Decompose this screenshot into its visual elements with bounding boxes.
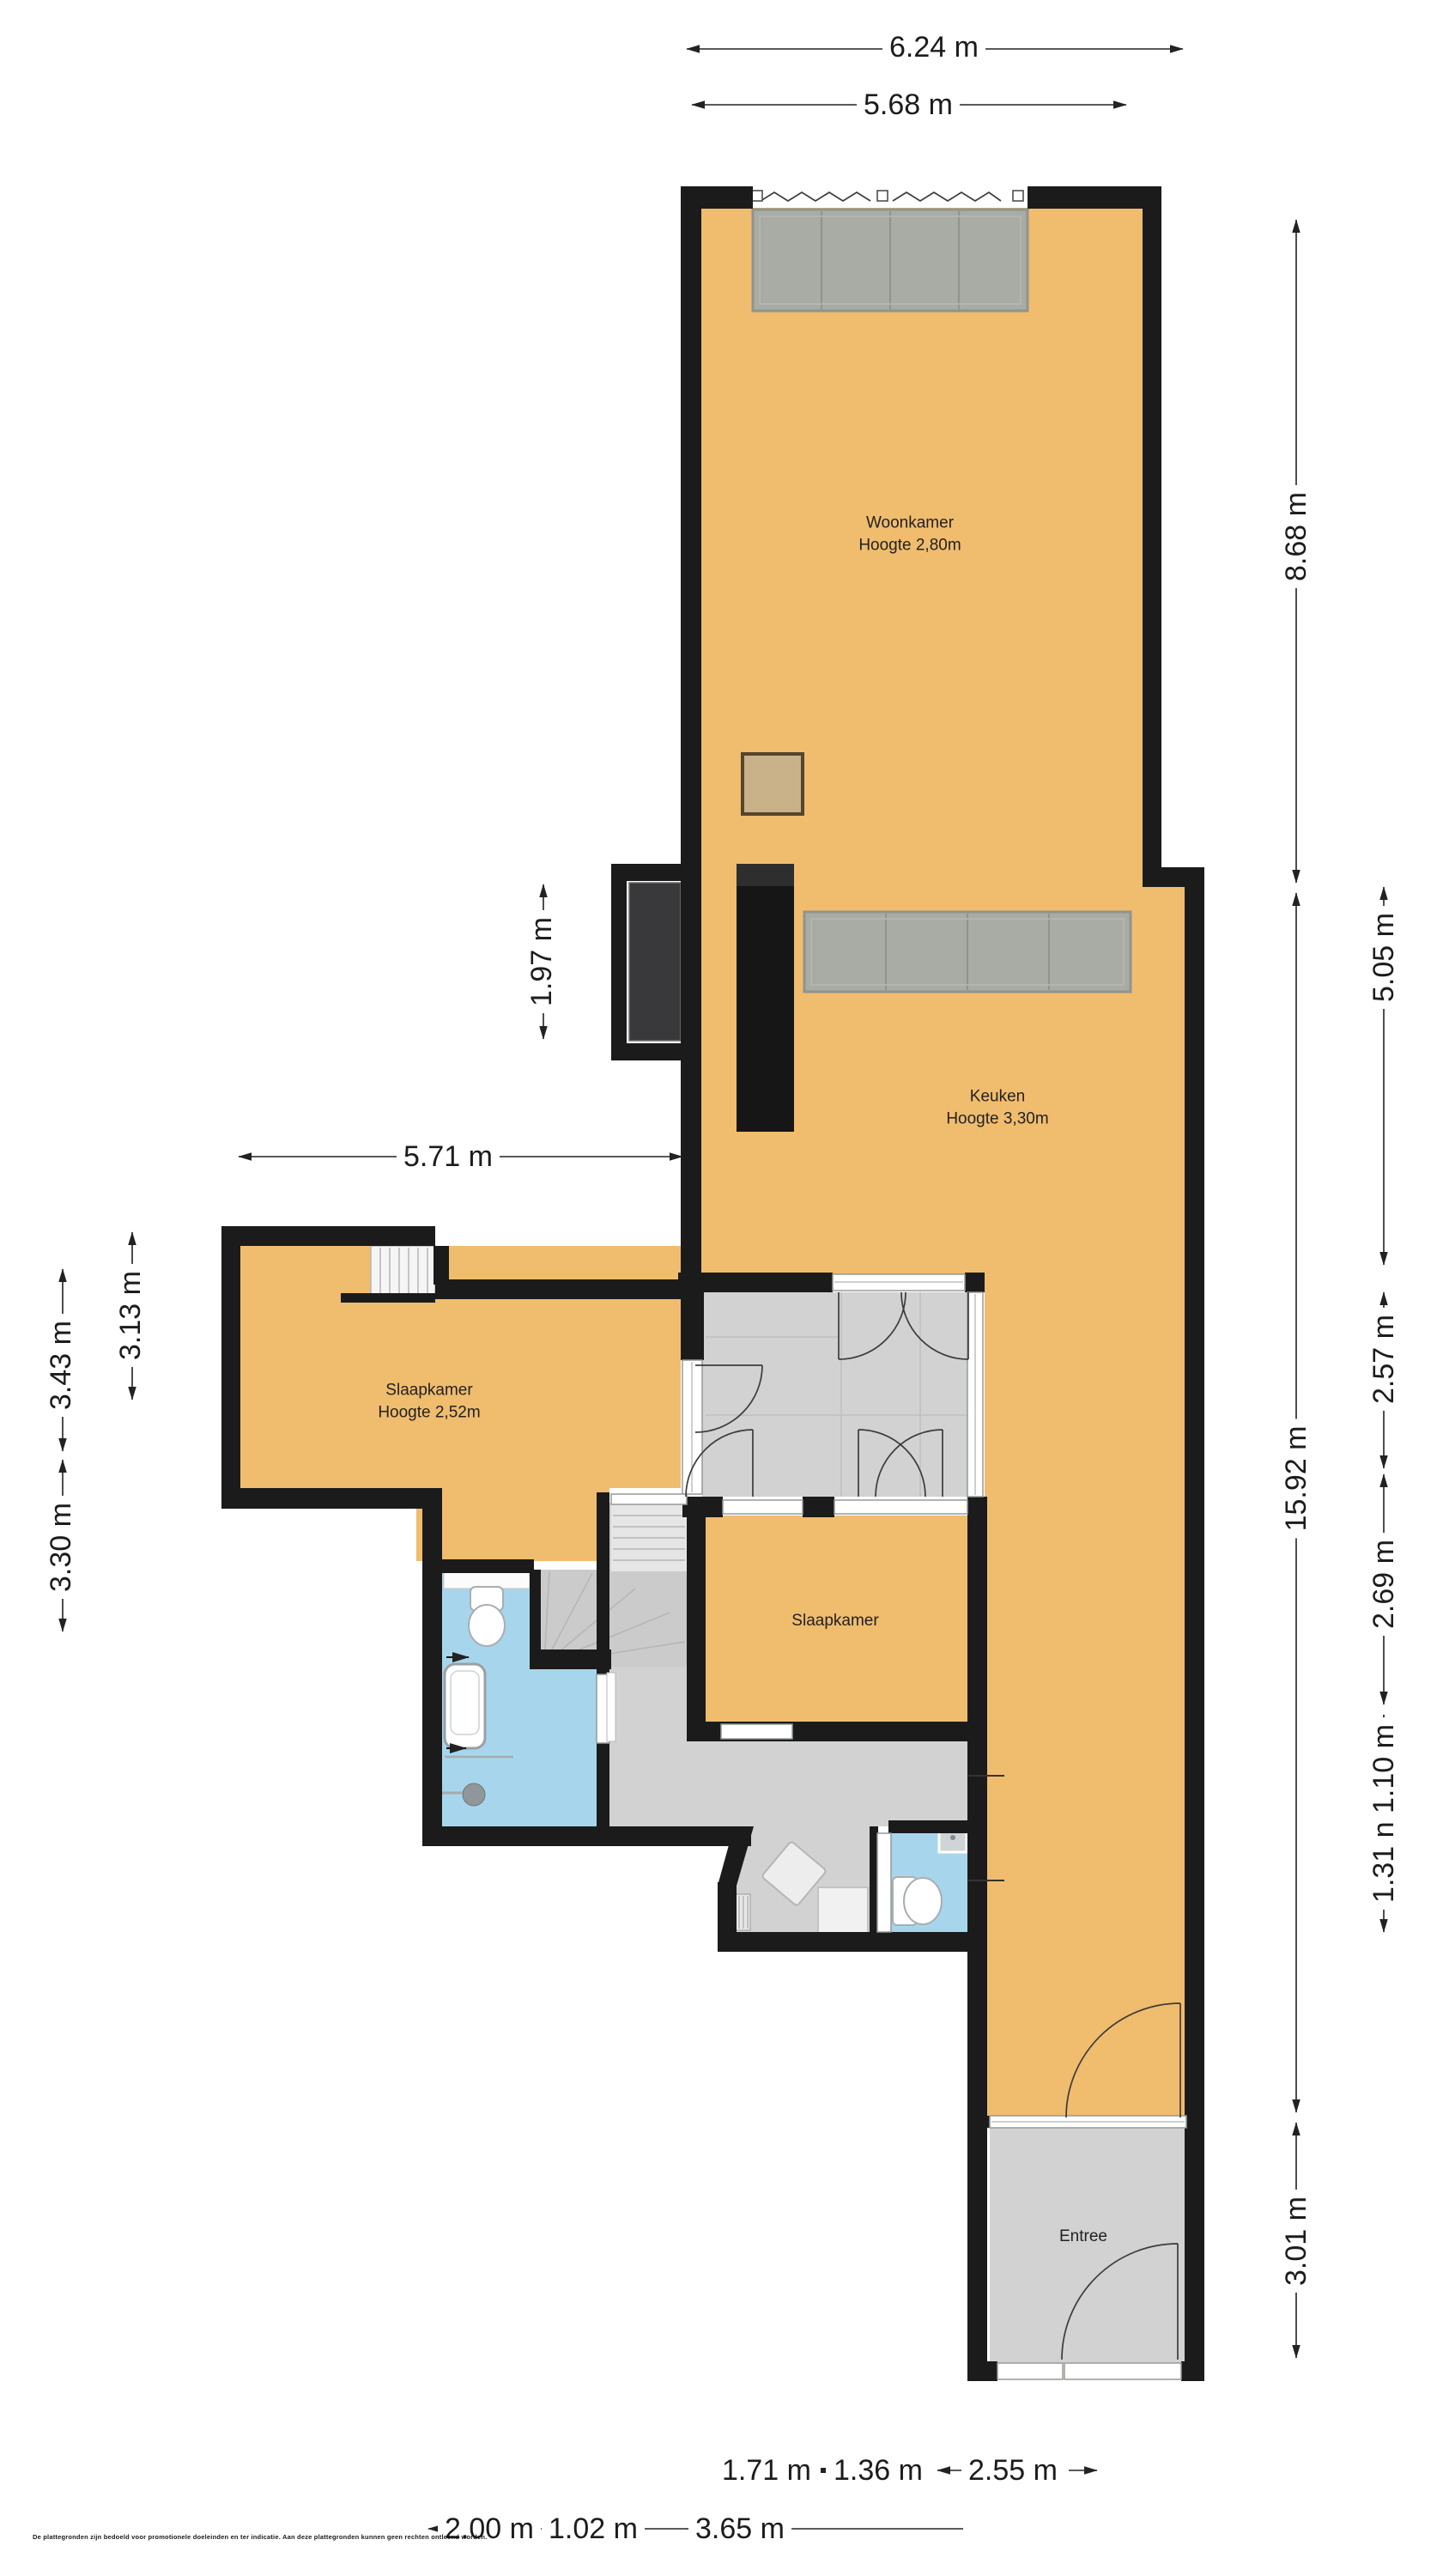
room-label-entree: Entree: [1059, 2226, 1107, 2248]
wall-segment: [597, 1492, 609, 1829]
wall-segment: [687, 1497, 706, 1741]
wall-segment: [422, 1826, 611, 1846]
room-name: Slaapkamer: [791, 1612, 878, 1630]
room-label-slaapkamer2: Slaapkamer: [791, 1610, 878, 1632]
room-name: Keuken: [970, 1087, 1025, 1105]
floor-bathroom-2: [530, 1669, 597, 1826]
wall-segment: [422, 1505, 442, 1840]
wall-segment: [718, 1932, 985, 1952]
floor-passage: [416, 1488, 609, 1561]
floor-corridor-right: [985, 1279, 1185, 2117]
wall-segment: [341, 1293, 435, 1303]
kitchen-island: [737, 864, 794, 1132]
dim-label-right-upper: 8.68 m: [1280, 485, 1313, 588]
wall-segment: [1143, 186, 1161, 887]
wall-segment: [803, 1497, 834, 1517]
bathroom-door-leaf: [607, 1673, 615, 1741]
dim-label-kitchen-width: 5.71 m: [397, 1140, 500, 1173]
window-pier: [877, 191, 888, 201]
room-height: Hoogte 2,80m: [858, 536, 961, 554]
shower-drain: [463, 1783, 485, 1806]
room-height: Hoogte 2,52m: [378, 1403, 480, 1421]
balcony-panel: [629, 883, 681, 1041]
entree-window: [997, 2363, 1063, 2379]
room-name: Entree: [1059, 2227, 1107, 2245]
window-pier: [752, 191, 762, 201]
dim-label-b1b: 1.36 m: [827, 2454, 930, 2487]
interior-window: [834, 1500, 967, 1514]
interior-window: [611, 1494, 687, 1504]
dim-label-right-total: 15.92 m: [1280, 1419, 1313, 1539]
wall-segment: [682, 1497, 723, 1517]
dim-label-bathroom: 3.30 m: [45, 1496, 77, 1599]
wall-segment: [681, 1291, 704, 1360]
disclaimer-text: De plattegronden zijn bedoeld voor promo…: [33, 2533, 487, 2541]
floorplan-canvas: 6.24 m 5.68 m 8.68 m 15.92 m 3.01 m 5.05…: [0, 0, 1449, 2576]
wall-segment: [965, 1273, 985, 1292]
wall-balcony: [611, 1043, 681, 1060]
dim-label-b2b: 1.02 m: [542, 2512, 645, 2545]
dim-label-bedroom-outer: 3.43 m: [45, 1314, 77, 1417]
wall-segment: [221, 1226, 240, 1509]
dim-label-b1a: 1.71 m: [715, 2454, 818, 2487]
wall-segment: [718, 1882, 737, 1935]
entree-door: [1064, 2363, 1181, 2379]
kitchen-island-cap: [737, 864, 794, 886]
dim-label-b1c: 2.55 m: [961, 2454, 1064, 2487]
room-label-keuken: Keuken Hoogte 3,30m: [946, 1085, 1048, 1129]
wall-balcony: [611, 864, 627, 1060]
wall-segment: [681, 186, 701, 1299]
room-label-slaapkamer1: Slaapkamer Hoogte 2,52m: [378, 1379, 480, 1423]
wc-sink: [939, 1832, 967, 1852]
wall-segment: [678, 1273, 833, 1292]
window-pier: [1013, 191, 1023, 201]
dim-label-right-wc: 1.31 n 1.10 m: [1367, 1717, 1400, 1910]
room-height: Hoogte 3,30m: [946, 1109, 1048, 1127]
wall-segment: [967, 1497, 987, 2381]
wall-segment: [987, 2361, 997, 2381]
dim-label-balcony: 1.97 m: [525, 910, 558, 1013]
wall-segment: [435, 1279, 681, 1299]
dim-label-right-hall: 2.57 m: [1367, 1308, 1400, 1411]
wall-segment: [221, 1226, 435, 1246]
room-name: Slaapkamer: [385, 1381, 472, 1399]
dim-label-right-kitchen: 5.05 m: [1367, 906, 1400, 1009]
wall-segment: [1181, 2361, 1204, 2381]
dim-label-b2c: 3.65 m: [688, 2512, 791, 2545]
dim-label-right-bedroom: 2.69 m: [1367, 1533, 1400, 1636]
dim-label-bedroom-inner: 3.13 m: [114, 1264, 147, 1367]
wall-segment: [221, 1488, 442, 1509]
wc-door: [877, 1833, 891, 1932]
wc-sink-faucet: [950, 1835, 955, 1840]
dim-label-top-inner: 5.68 m: [857, 88, 960, 121]
wall-segment: [1185, 867, 1204, 2381]
interior-window: [723, 1500, 803, 1514]
dim-label-top-outer: 6.24 m: [882, 31, 985, 64]
floor-hall: [702, 1292, 967, 1497]
appliance: [818, 1887, 868, 1934]
wall-segment: [442, 1559, 534, 1573]
floor-corridor-low: [689, 1741, 967, 1826]
wc-toilet-bowl: [904, 1878, 942, 1924]
dim-label-right-lower: 3.01 m: [1280, 2190, 1313, 2293]
column-block: [743, 754, 803, 814]
dim-dot: [821, 2468, 826, 2473]
room-label-woonkamer: Woonkamer Hoogte 2,80m: [858, 512, 961, 556]
toilet-bowl: [469, 1605, 505, 1646]
room-name: Woonkamer: [866, 513, 954, 532]
wall-segment: [1028, 186, 1161, 209]
wall-segment: [433, 1246, 449, 1285]
interior-window: [721, 1724, 792, 1739]
floorplan-drawing: [0, 0, 1449, 2576]
